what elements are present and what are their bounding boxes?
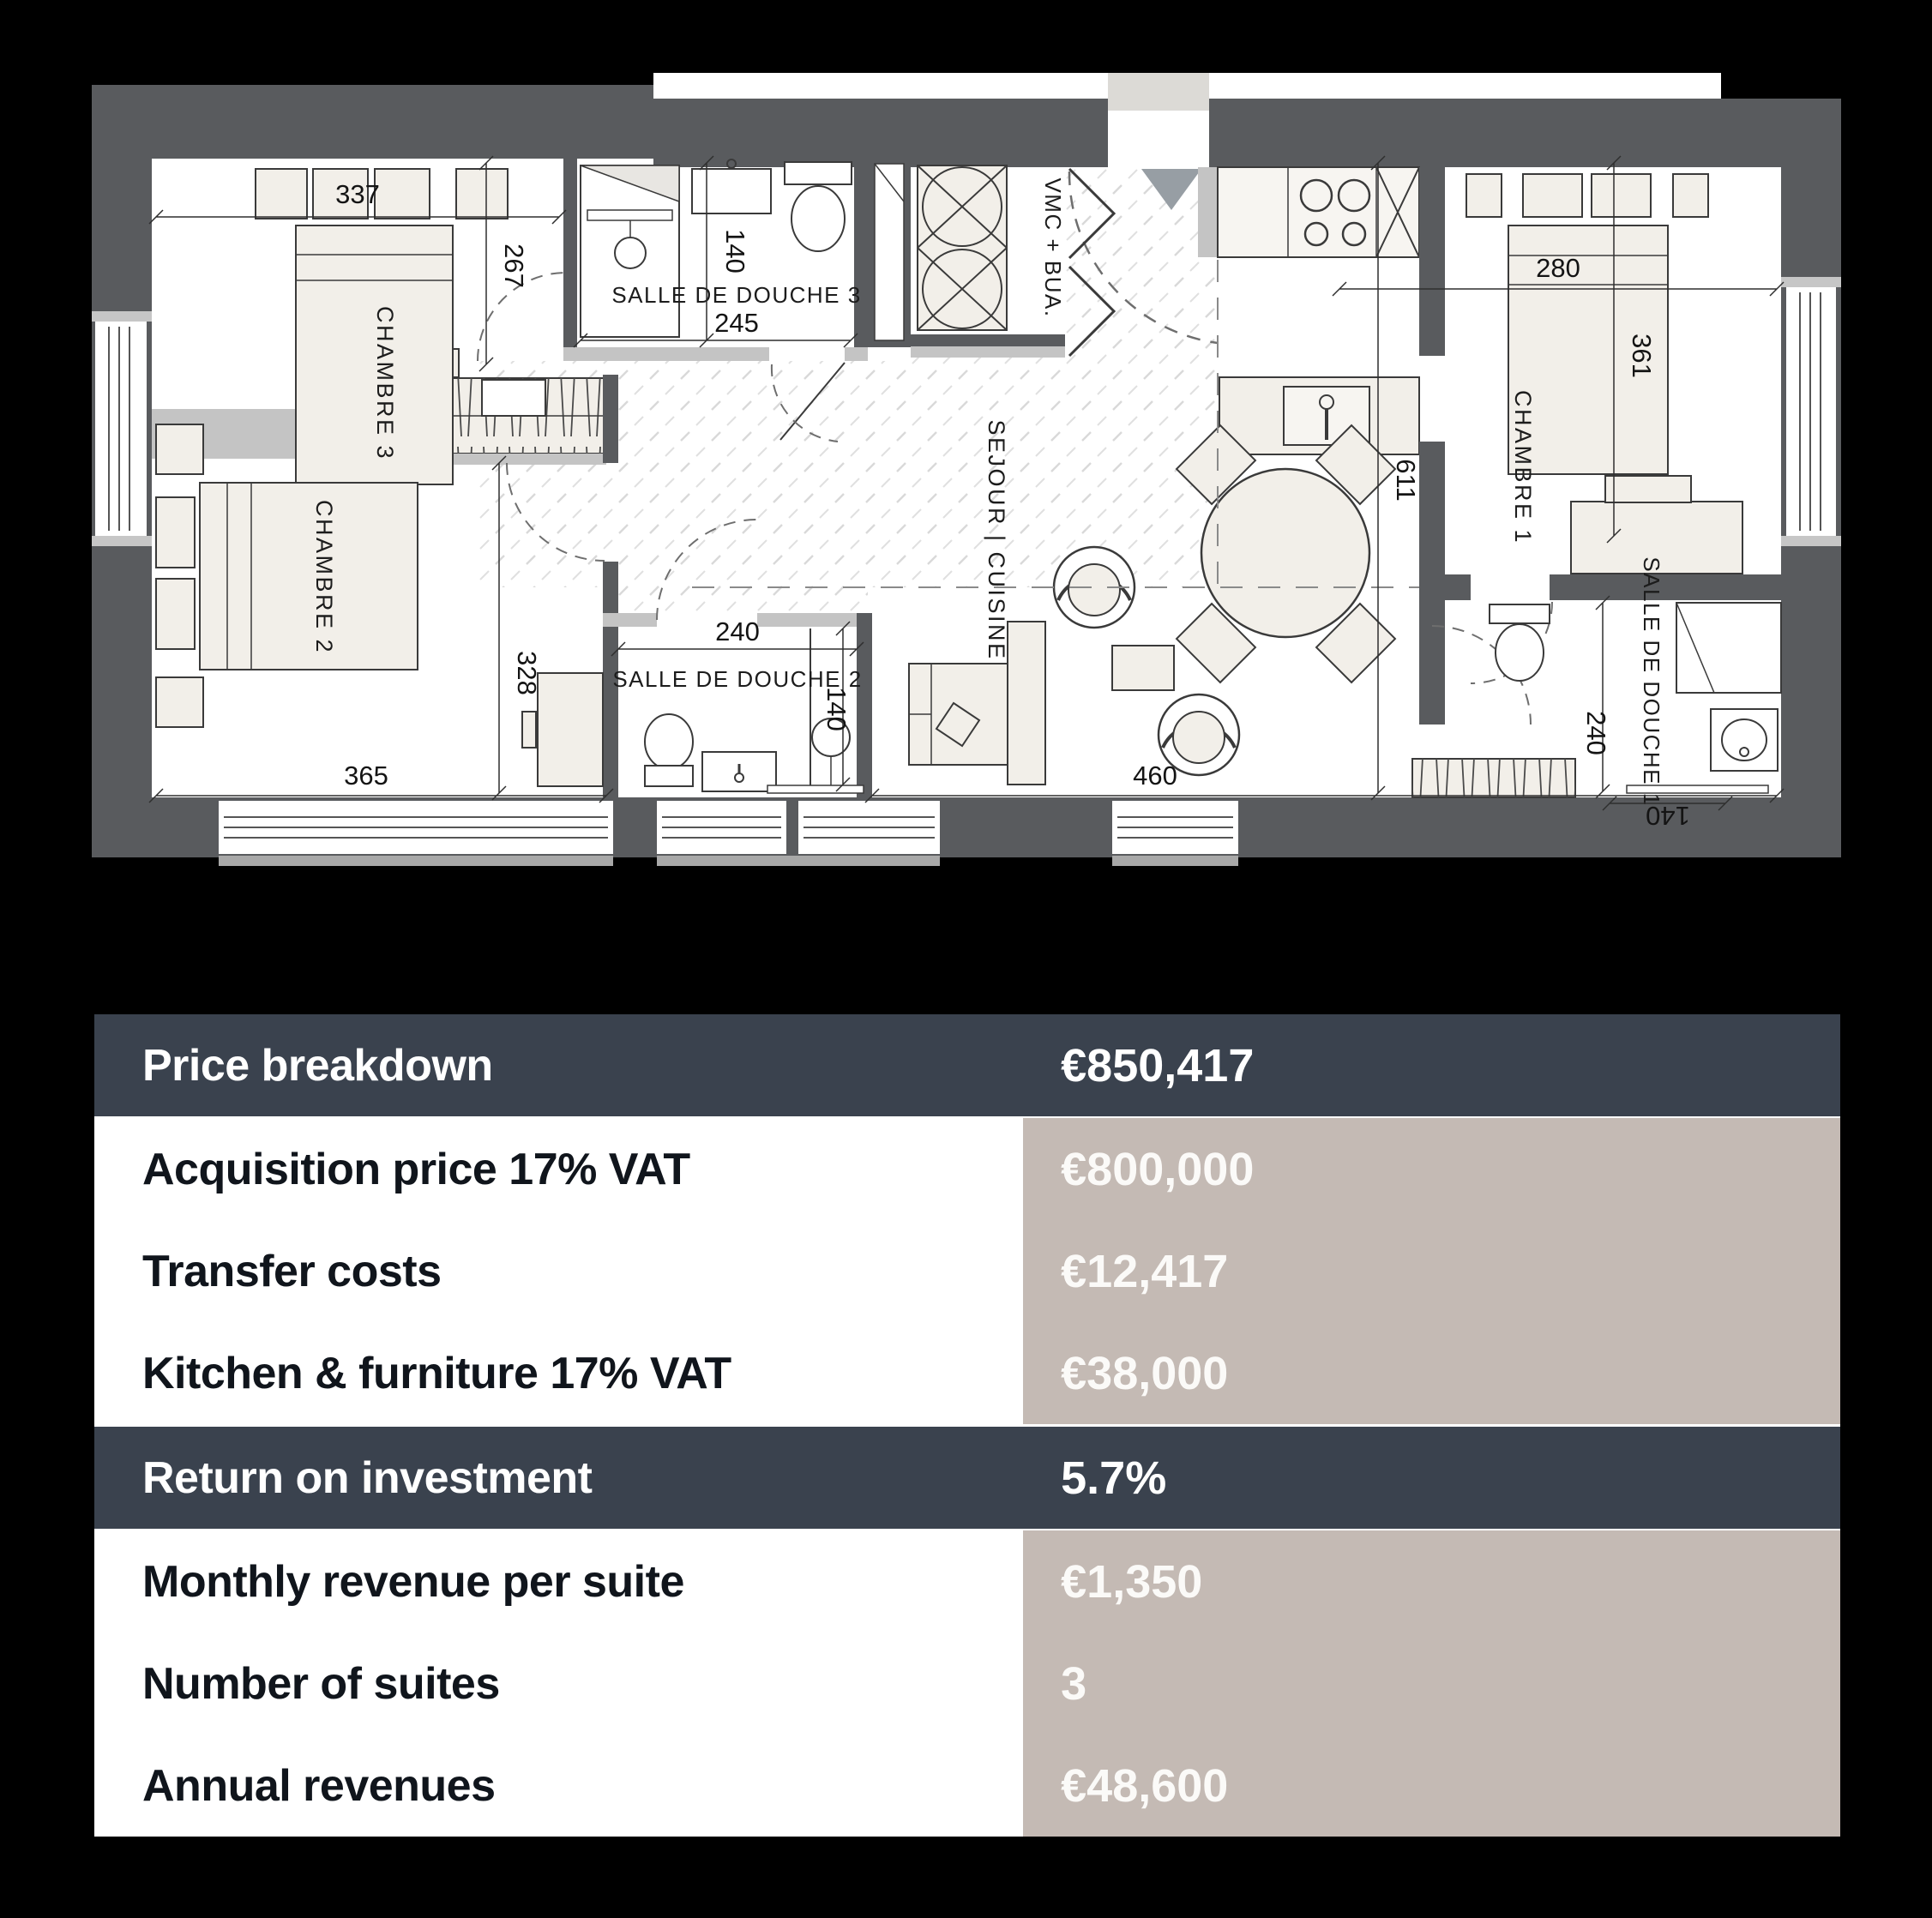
dim-240-sdd1: 240 bbox=[1581, 711, 1611, 755]
dim-280: 280 bbox=[1536, 253, 1580, 283]
floor-plan-svg: SALLE DE DOUCHE 3 VMC + BUA. bbox=[92, 73, 1841, 905]
dim-240-sdd2: 240 bbox=[715, 616, 760, 646]
nightstand bbox=[156, 424, 203, 474]
row-label: Kitchen & furniture 17% VAT bbox=[94, 1322, 1023, 1424]
room-label-chambre2: CHAMBRE 2 bbox=[311, 500, 337, 654]
table-row-annual-revenues: Annual revenues €48,600 bbox=[94, 1735, 1840, 1837]
nightstand bbox=[1673, 174, 1708, 217]
table-row-number-of-suites: Number of suites 3 bbox=[94, 1632, 1840, 1735]
row-value: 3 bbox=[1023, 1632, 1840, 1735]
dim-611: 611 bbox=[1391, 459, 1421, 501]
pillow bbox=[1523, 174, 1582, 217]
dim-328: 328 bbox=[512, 651, 542, 695]
dim-267: 267 bbox=[499, 244, 529, 288]
dim-140-sdd2: 140 bbox=[822, 687, 852, 731]
room-label-sdd1: SALLE DE DOUCHE 1 bbox=[1639, 556, 1664, 806]
nightstand bbox=[456, 169, 508, 219]
tv-bench bbox=[1008, 622, 1045, 785]
window-left bbox=[92, 311, 152, 546]
table-row-price-breakdown: Price breakdown €850,417 bbox=[94, 1014, 1840, 1118]
row-value: €800,000 bbox=[1023, 1118, 1840, 1220]
sink-2 bbox=[702, 752, 776, 791]
sofa bbox=[909, 664, 1010, 765]
wardrobe-chambre-1 bbox=[1412, 759, 1575, 797]
cabinet bbox=[538, 673, 603, 786]
pillow bbox=[375, 169, 430, 219]
shower-3 bbox=[581, 165, 679, 337]
table-row-transfer-costs: Transfer costs €12,417 bbox=[94, 1220, 1840, 1322]
row-label: Transfer costs bbox=[94, 1220, 1023, 1322]
sink-1 bbox=[1711, 709, 1778, 771]
row-value: 5.7% bbox=[1023, 1427, 1840, 1529]
row-label: Price breakdown bbox=[94, 1014, 1023, 1116]
interior-walls-left bbox=[603, 375, 618, 797]
window-right bbox=[1781, 277, 1841, 546]
row-label: Monthly revenue per suite bbox=[94, 1530, 1023, 1632]
page: { "plan": { "rooms": { "chambre3": "CHAM… bbox=[0, 0, 1932, 1918]
pillow bbox=[156, 579, 195, 649]
row-value: €12,417 bbox=[1023, 1220, 1840, 1322]
table-row-monthly-revenue: Monthly revenue per suite €1,350 bbox=[94, 1530, 1840, 1632]
table-row-acquisition-price: Acquisition price 17% VAT €800,000 bbox=[94, 1118, 1840, 1220]
row-value: €1,350 bbox=[1023, 1530, 1840, 1632]
room-label-sdd3: SALLE DE DOUCHE 3 bbox=[611, 282, 861, 308]
room-label-chambre1: CHAMBRE 1 bbox=[1510, 390, 1536, 544]
room-label-sejour: SEJOUR | CUISINE bbox=[984, 419, 1009, 660]
dim-460: 460 bbox=[1133, 761, 1177, 791]
bed-chambre-2 bbox=[200, 483, 418, 670]
row-label: Number of suites bbox=[94, 1632, 1023, 1735]
row-value: €48,600 bbox=[1023, 1735, 1840, 1837]
price-table: Price breakdown €850,417 Acquisition pri… bbox=[94, 1014, 1840, 1837]
nightstand bbox=[256, 169, 307, 219]
pillow bbox=[1592, 174, 1651, 217]
nightstand bbox=[156, 677, 203, 727]
dim-140-sdd1: 140 bbox=[1646, 801, 1690, 831]
table-row-kitchen-furniture: Kitchen & furniture 17% VAT €38,000 bbox=[94, 1322, 1840, 1424]
washing-machines bbox=[918, 165, 1007, 330]
nightstand bbox=[1466, 174, 1502, 217]
row-value: €38,000 bbox=[1023, 1322, 1840, 1424]
room-label-chambre3: CHAMBRE 3 bbox=[372, 306, 398, 460]
row-value: €850,417 bbox=[1023, 1014, 1840, 1116]
floor-plan: SALLE DE DOUCHE 3 VMC + BUA. bbox=[92, 73, 1841, 905]
kitchen-island bbox=[1219, 377, 1419, 454]
row-label: Annual revenues bbox=[94, 1735, 1023, 1837]
pillow bbox=[156, 497, 195, 568]
dim-361: 361 bbox=[1627, 334, 1657, 378]
dim-140-sdd3: 140 bbox=[720, 229, 750, 274]
dim-337: 337 bbox=[335, 179, 380, 209]
row-label: Return on investment bbox=[94, 1427, 1023, 1529]
table-row-return-on-investment: Return on investment 5.7% bbox=[94, 1424, 1840, 1530]
toilet-2 bbox=[645, 714, 693, 786]
coffee-table bbox=[1112, 646, 1174, 690]
dim-245: 245 bbox=[714, 308, 759, 338]
shower-1 bbox=[1676, 603, 1781, 693]
dim-365: 365 bbox=[344, 761, 388, 791]
room-label-vmc: VMC + BUA. bbox=[1040, 177, 1066, 317]
row-label: Acquisition price 17% VAT bbox=[94, 1118, 1023, 1220]
